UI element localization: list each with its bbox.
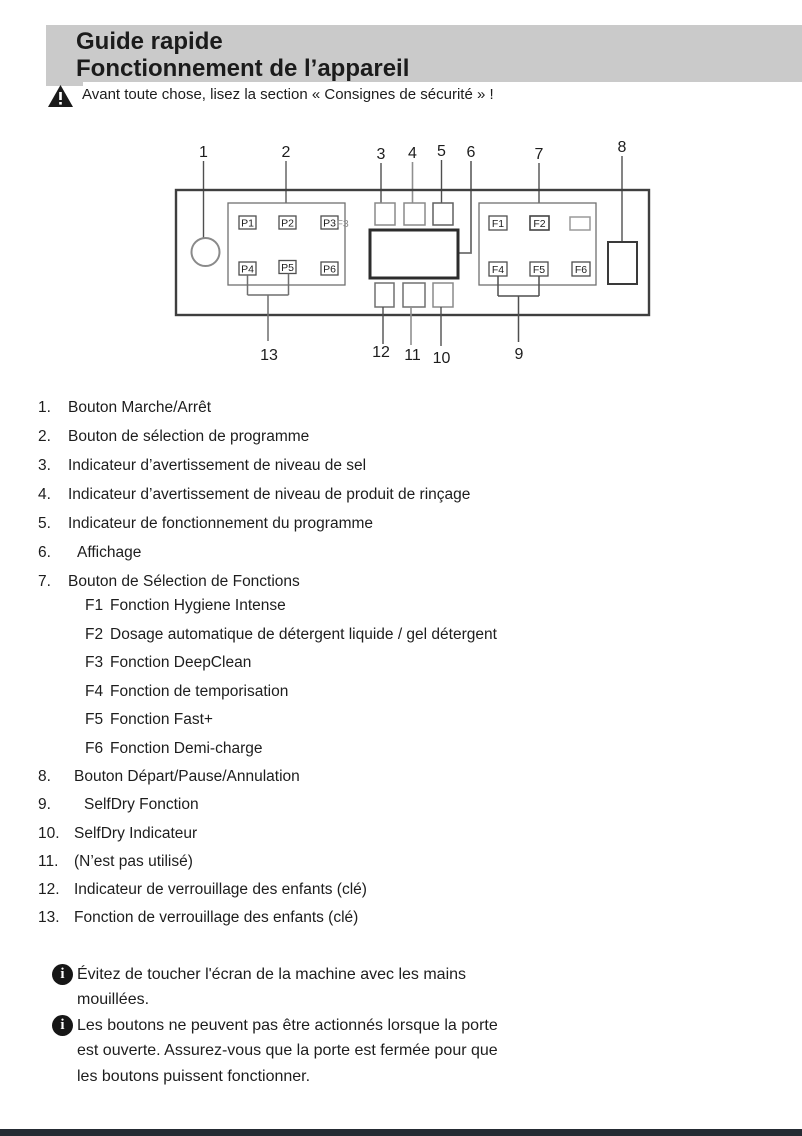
info-icon: i: [52, 964, 73, 985]
info-note-1-line-1: Évitez de toucher l'écran de la machine …: [77, 962, 466, 987]
callout-number-9: 9: [515, 346, 524, 363]
program-button-p5-label: P5: [281, 262, 294, 274]
callout-number-13: 13: [260, 347, 278, 364]
legend-item-4-text: Indicateur d’avertissement de niveau de …: [68, 486, 470, 503]
panel-outline: [176, 190, 649, 315]
function-item-f6-text: Fonction Demi-charge: [110, 740, 262, 757]
child-lock-bracket: [248, 274, 289, 342]
legend-item-9-text: SelfDry Fonction: [84, 796, 199, 813]
legend-item-9-number: 9.: [38, 791, 74, 819]
unused-indicator-box: [403, 283, 425, 307]
function-item-f2-text: Dosage automatique de détergent liquide …: [110, 626, 497, 643]
legend-item-10-number: 10.: [38, 820, 74, 848]
program-running-indicator-box: [433, 203, 453, 225]
manual-page: Guide rapide Fonctionnement de l’apparei…: [0, 0, 802, 1136]
legend-item-7-number: 7.: [38, 567, 68, 596]
function-item-f4-label: F4: [85, 678, 110, 707]
safety-warning-note: Avant toute chose, lisez la section « Co…: [48, 84, 494, 107]
info-note-2: i Les boutons ne peuvent pas être action…: [52, 1013, 498, 1089]
control-panel-diagram: 1 2 3 4 5 6 7 8 P1 P2 P3 F3 P4 P5 P6: [0, 130, 802, 375]
program-button-p3-label: P3: [323, 217, 336, 229]
info-note-2-text: Les boutons ne peuvent pas être actionné…: [77, 1013, 498, 1089]
function-item-f5-text: Fonction Fast+: [110, 711, 213, 728]
legend-item-10-text: SelfDry Indicateur: [74, 825, 197, 842]
legend-item-4: 4.Indicateur d’avertissement de niveau d…: [38, 480, 470, 509]
page-title-line1: Guide rapide: [46, 25, 802, 55]
start-pause-button-box: [608, 242, 637, 284]
legend-item-11-number: 11.: [38, 848, 74, 876]
program-button-p1-label: P1: [241, 217, 254, 229]
info-note-2-line-1: Les boutons ne peuvent pas être actionné…: [77, 1013, 498, 1038]
callout-number-6: 6: [467, 144, 476, 161]
legend-item-8-text: Bouton Départ/Pause/Annulation: [74, 768, 300, 785]
header-banner: Guide rapide Fonctionnement de l’apparei…: [46, 25, 802, 82]
function-item-f3: F3Fonction DeepClean: [85, 649, 497, 678]
legend-item-1-text: Bouton Marche/Arrêt: [68, 399, 211, 416]
selfdry-indicator-box: [433, 283, 453, 307]
function-item-f4: F4Fonction de temporisation: [85, 678, 497, 707]
function-item-f3-text: Fonction DeepClean: [110, 654, 251, 671]
callout-number-1: 1: [199, 144, 208, 161]
legend-item-8: 8.Bouton Départ/Pause/Annulation: [38, 763, 367, 791]
info-note-2-line-3: les boutons puissent fonctionner.: [77, 1064, 498, 1089]
function-button-f1-label: F1: [492, 218, 504, 230]
legend-item-13-number: 13.: [38, 904, 74, 932]
callout-number-11: 11: [404, 347, 421, 364]
function-item-f5: F5Fonction Fast+: [85, 706, 497, 735]
legend-item-9: 9.SelfDry Fonction: [38, 791, 367, 819]
callout-number-8: 8: [618, 139, 627, 156]
function-item-f3-label: F3: [85, 649, 110, 678]
legend-item-6-number: 6.: [38, 538, 68, 567]
legend-list-1: 1.Bouton Marche/Arrêt 2.Bouton de sélect…: [38, 393, 470, 596]
function-button-f4-label: F4: [492, 264, 504, 276]
page-title-line2: Fonctionnement de l’appareil: [46, 55, 802, 82]
function-item-f5-label: F5: [85, 706, 110, 735]
callout-number-3: 3: [377, 146, 386, 163]
power-button-circle: [192, 238, 220, 266]
child-lock-indicator-box: [375, 283, 394, 307]
legend-item-5: 5.Indicateur de fonctionnement du progra…: [38, 509, 470, 538]
legend-item-1: 1.Bouton Marche/Arrêt: [38, 393, 470, 422]
legend-item-3-text: Indicateur d’avertissement de niveau de …: [68, 457, 366, 474]
program-button-p4-label: P4: [241, 263, 254, 275]
legend-item-4-number: 4.: [38, 480, 68, 509]
legend-item-12-number: 12.: [38, 876, 74, 904]
program-button-p2-label: P2: [281, 217, 294, 229]
warning-text: Avant toute chose, lisez la section « Co…: [82, 84, 494, 106]
function-item-f2: F2Dosage automatique de détergent liquid…: [85, 621, 497, 650]
function-button-f2-label: F2: [533, 218, 545, 230]
legend-item-10: 10.SelfDry Indicateur: [38, 820, 367, 848]
function-item-f1: F1Fonction Hygiene Intense: [85, 592, 497, 621]
info-note-1-text: Évitez de toucher l'écran de la machine …: [77, 962, 466, 1013]
function-item-f1-label: F1: [85, 592, 110, 621]
info-note-2-line-2: est ouverte. Assurez-vous que la porte e…: [77, 1038, 498, 1063]
legend-item-7-text: Bouton de Sélection de Fonctions: [68, 573, 300, 590]
callout-line-6: [458, 161, 471, 253]
legend-item-11: 11.(N’est pas utilisé): [38, 848, 367, 876]
info-icon: i: [52, 1015, 73, 1036]
function-item-f6-label: F6: [85, 735, 110, 764]
function-item-f2-label: F2: [85, 621, 110, 650]
legend-item-3-number: 3.: [38, 451, 68, 480]
function-item-f6: F6Fonction Demi-charge: [85, 735, 497, 764]
legend-list-2: 8.Bouton Départ/Pause/Annulation 9.SelfD…: [38, 763, 367, 933]
selfdry-bracket: [498, 276, 539, 342]
rinse-aid-indicator-box: [404, 203, 425, 225]
program-button-p6-label: P6: [323, 263, 336, 275]
callout-number-12: 12: [372, 344, 390, 361]
function-legend-list: F1Fonction Hygiene Intense F2Dosage auto…: [85, 592, 497, 763]
info-note-1-line-2: mouillées.: [77, 987, 466, 1012]
salt-indicator-box: [375, 203, 395, 225]
p3-ghost-f3-label: F3: [337, 218, 349, 230]
warning-triangle-icon: [48, 85, 73, 107]
legend-item-11-text: (N’est pas utilisé): [74, 853, 193, 870]
info-note-1: i Évitez de toucher l'écran de la machin…: [52, 962, 466, 1013]
callout-number-5: 5: [437, 143, 446, 160]
function-button-f5-label: F5: [533, 264, 545, 276]
footer-bar: [0, 1129, 802, 1136]
legend-item-2-number: 2.: [38, 422, 68, 451]
callout-number-10: 10: [433, 350, 451, 367]
legend-item-8-number: 8.: [38, 763, 74, 791]
legend-item-13-text: Fonction de verrouillage des enfants (cl…: [74, 909, 358, 926]
legend-item-2: 2.Bouton de sélection de programme: [38, 422, 470, 451]
callout-number-7: 7: [535, 146, 544, 163]
legend-item-12-text: Indicateur de verrouillage des enfants (…: [74, 881, 367, 898]
legend-item-13: 13.Fonction de verrouillage des enfants …: [38, 904, 367, 932]
legend-item-5-text: Indicateur de fonctionnement du programm…: [68, 515, 373, 532]
blank-function-box: [570, 217, 590, 230]
legend-item-5-number: 5.: [38, 509, 68, 538]
callout-number-4: 4: [408, 145, 417, 162]
function-item-f4-text: Fonction de temporisation: [110, 683, 288, 700]
legend-item-3: 3.Indicateur d’avertissement de niveau d…: [38, 451, 470, 480]
legend-item-6-text: Affichage: [77, 544, 141, 561]
callout-number-2: 2: [282, 144, 291, 161]
legend-item-1-number: 1.: [38, 393, 68, 422]
display-box: [370, 230, 458, 278]
function-button-f6-label: F6: [575, 264, 587, 276]
legend-item-12: 12.Indicateur de verrouillage des enfant…: [38, 876, 367, 904]
function-item-f1-text: Fonction Hygiene Intense: [110, 597, 286, 614]
legend-item-2-text: Bouton de sélection de programme: [68, 428, 309, 445]
legend-item-6: 6.Affichage: [38, 538, 470, 567]
